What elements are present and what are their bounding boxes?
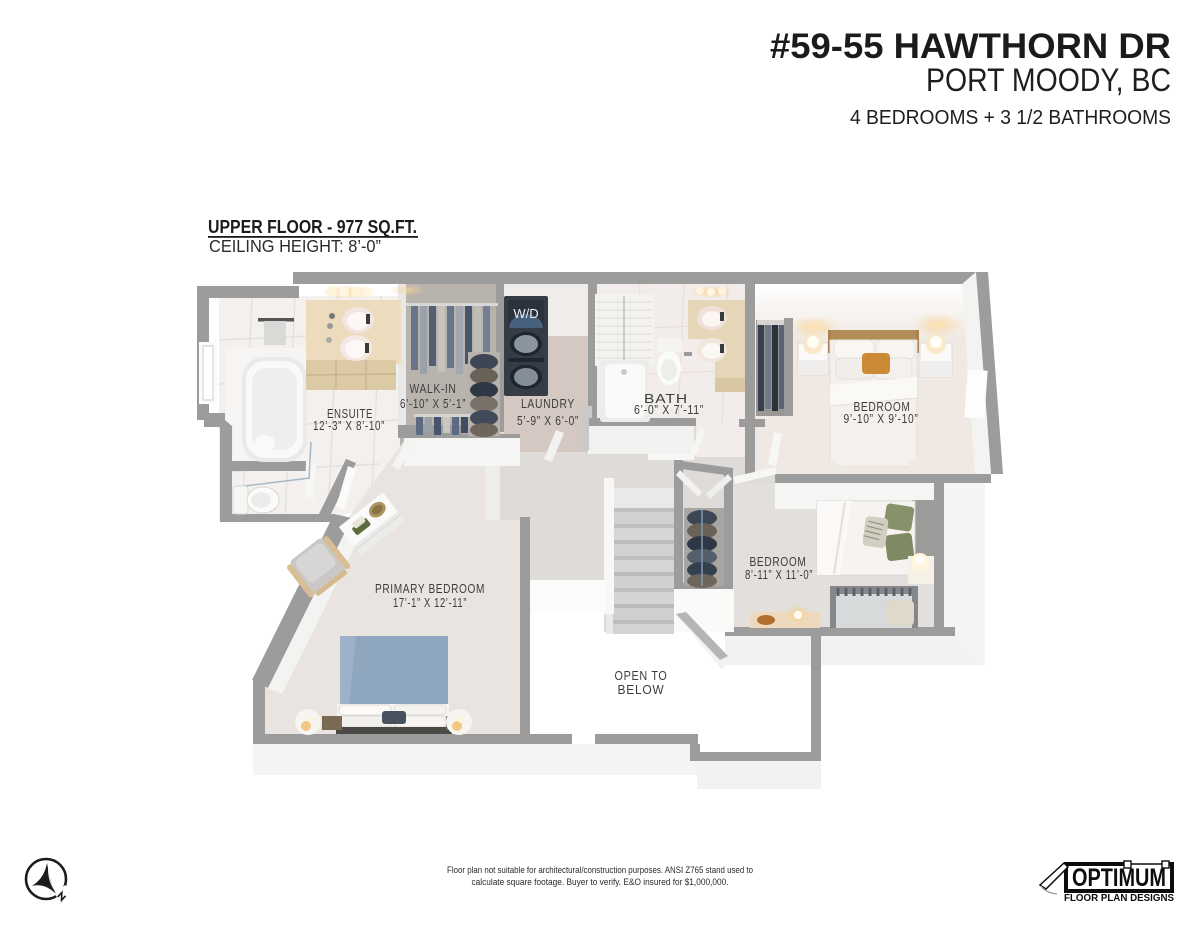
svg-text:BELOW: BELOW [618, 682, 665, 697]
svg-text:4 BEDROOMS + 3 1/2 BATHROOMS: 4 BEDROOMS + 3 1/2 BATHROOMS [850, 107, 1171, 129]
svg-text:6’-10” X 5’-1”: 6’-10” X 5’-1” [400, 397, 466, 411]
svg-text:OPTIMUM: OPTIMUM [1072, 864, 1166, 892]
svg-text:UPPER FLOOR - 977 SQ.FT.: UPPER FLOOR - 977 SQ.FT. [208, 217, 417, 237]
svg-text:PRIMARY BEDROOM: PRIMARY BEDROOM [375, 581, 485, 596]
svg-text:OPEN TO: OPEN TO [615, 668, 668, 683]
svg-text:17’-1” X 12’-11”: 17’-1” X 12’-11” [393, 596, 467, 610]
svg-text:12’-3” X 8’-10”: 12’-3” X 8’-10” [313, 419, 385, 433]
svg-text:PORT MOODY, BC: PORT MOODY, BC [926, 62, 1171, 98]
svg-text:Floor plan not suitable for ar: Floor plan not suitable for architectura… [447, 865, 753, 876]
svg-text:LAUNDRY: LAUNDRY [521, 396, 575, 411]
svg-text:#59-55 HAWTHORN DR: #59-55 HAWTHORN DR [770, 27, 1171, 66]
svg-text:CEILING HEIGHT: 8’-0”: CEILING HEIGHT: 8’-0” [209, 236, 381, 256]
svg-text:6’-0” X 7’-11”: 6’-0” X 7’-11” [634, 403, 704, 417]
svg-text:BEDROOM: BEDROOM [750, 554, 807, 569]
svg-text:WALK-IN: WALK-IN [410, 381, 457, 396]
svg-text:W/D: W/D [513, 306, 538, 321]
svg-text:calculate square footage. Buye: calculate square footage. Buyer to verif… [472, 877, 729, 888]
svg-text:9’-10” X 9’-10”: 9’-10” X 9’-10” [844, 412, 919, 426]
svg-text:FLOOR PLAN DESIGNS: FLOOR PLAN DESIGNS [1064, 892, 1174, 904]
svg-text:5’-9” X 6’-0”: 5’-9” X 6’-0” [517, 414, 579, 428]
svg-text:8’-11” X 11’-0”: 8’-11” X 11’-0” [745, 568, 813, 582]
